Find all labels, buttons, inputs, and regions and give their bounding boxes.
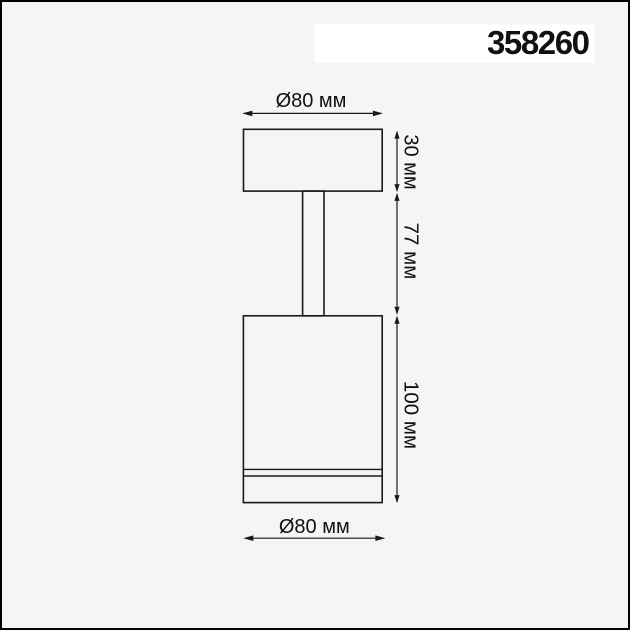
svg-text:Ø80 мм: Ø80 мм	[279, 516, 350, 538]
svg-text:30 мм: 30 мм	[400, 134, 422, 189]
svg-text:358260: 358260	[487, 24, 590, 61]
svg-text:77 мм: 77 мм	[400, 223, 423, 280]
svg-text:100 мм: 100 мм	[400, 381, 423, 449]
svg-text:Ø80 мм: Ø80 мм	[276, 90, 347, 112]
